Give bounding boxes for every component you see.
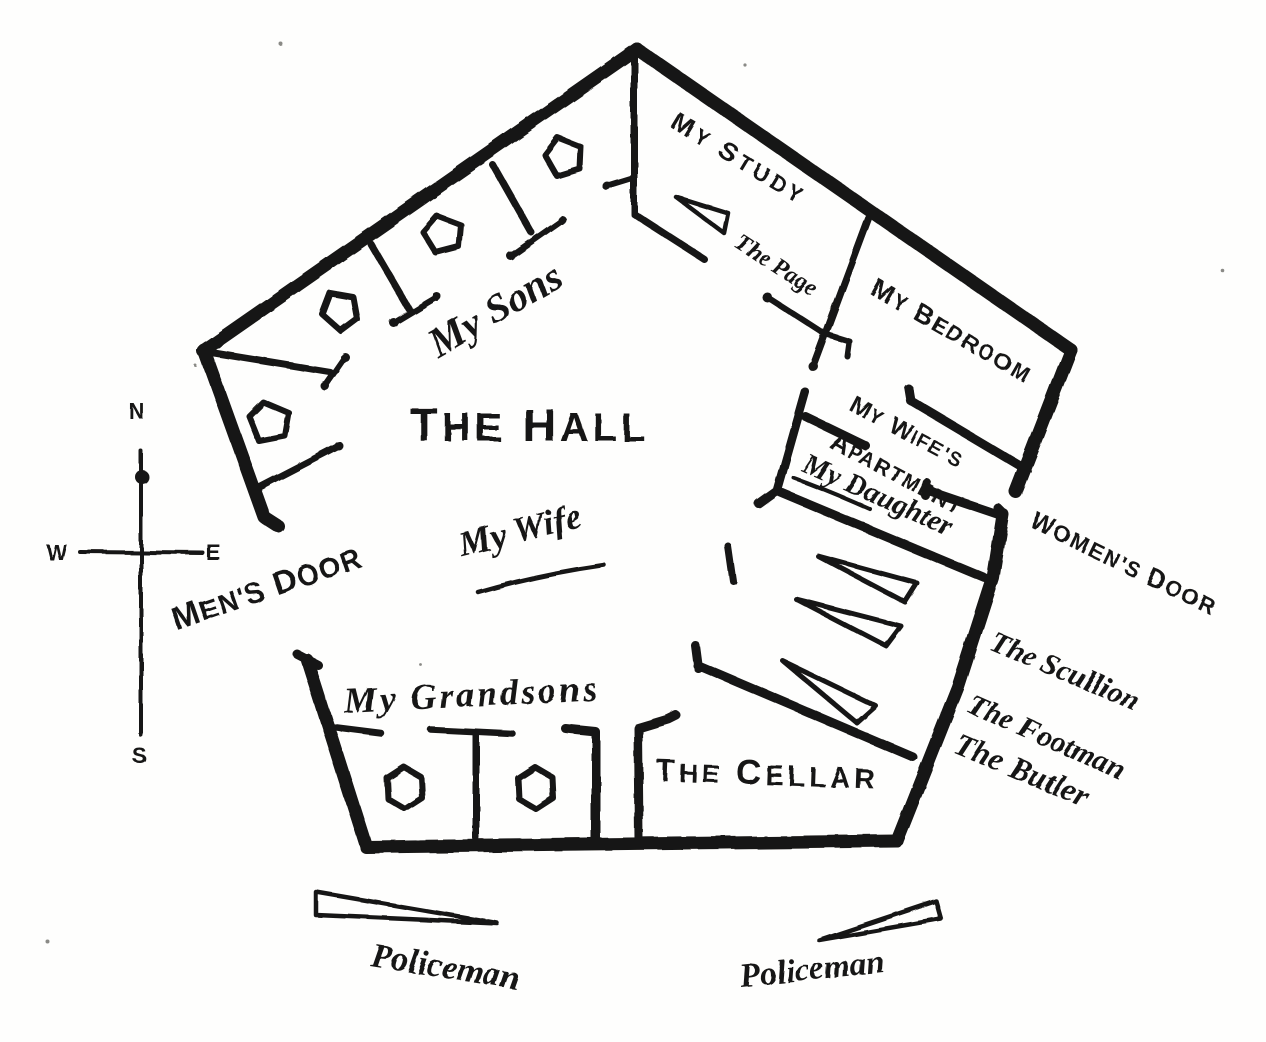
svg-text:My Wife: My Wife — [453, 495, 585, 564]
svg-text:Policeman: Policeman — [368, 937, 522, 997]
svg-text:My Grandsons: My Grandsons — [342, 668, 600, 721]
svg-text:N: N — [129, 399, 145, 424]
svg-text:THE HALL: THE HALL — [410, 399, 649, 451]
svg-text:The Page: The Page — [730, 229, 823, 302]
svg-text:WOMEN'S DOOR: WOMEN'S DOOR — [1025, 504, 1222, 621]
svg-text:Policeman: Policeman — [737, 944, 886, 995]
svg-text:E: E — [206, 540, 221, 565]
svg-text:W: W — [46, 540, 67, 565]
svg-text:S: S — [132, 743, 147, 768]
svg-text:THE CELLAR: THE CELLAR — [656, 750, 880, 797]
svg-text:My Sons: My Sons — [419, 252, 570, 366]
svg-text:MY BEDROOM: MY BEDROOM — [866, 272, 1038, 389]
